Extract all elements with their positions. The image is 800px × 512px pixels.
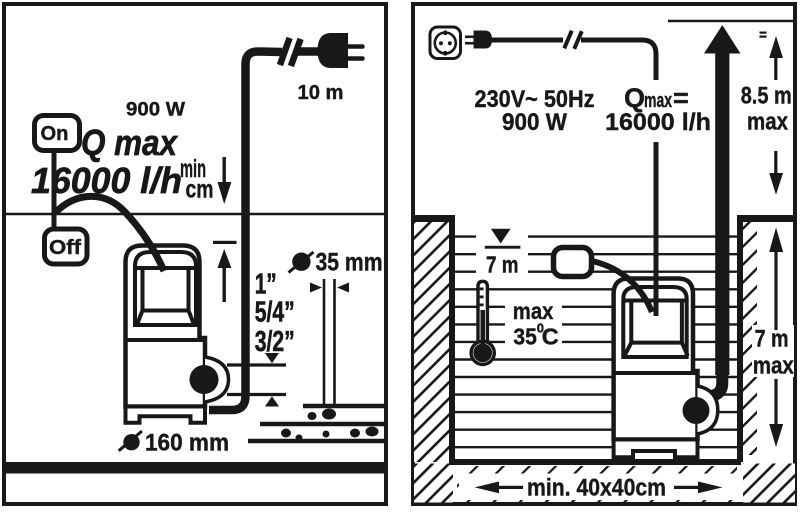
svg-text:35 mm: 35 mm: [316, 249, 383, 277]
svg-text:160 mm: 160 mm: [145, 431, 229, 457]
svg-text:16000 l/h: 16000 l/h: [31, 160, 182, 201]
svg-text:min. 40x40cm: min. 40x40cm: [527, 474, 666, 501]
svg-text:cm: cm: [186, 176, 214, 204]
svg-text:On: On: [41, 122, 69, 145]
svg-text:10 m: 10 m: [298, 82, 344, 104]
svg-text:5/4”: 5/4”: [255, 297, 295, 329]
svg-text:max: max: [753, 352, 795, 379]
svg-text:35: 35: [513, 324, 537, 350]
svg-text:max: max: [747, 109, 789, 136]
svg-text:3/2”: 3/2”: [255, 326, 295, 358]
svg-text:8.5 m: 8.5 m: [741, 84, 792, 110]
svg-text:max: max: [513, 298, 554, 324]
svg-text:7 m: 7 m: [486, 251, 519, 277]
svg-text:900 W: 900 W: [502, 109, 568, 136]
svg-text:16000 l/h: 16000 l/h: [605, 109, 711, 136]
svg-text:7 m: 7 m: [755, 326, 789, 353]
svg-text:C: C: [542, 324, 559, 350]
svg-text:Q max: Q max: [81, 122, 179, 163]
svg-text:Off: Off: [49, 236, 81, 259]
svg-text:900 W: 900 W: [126, 100, 185, 121]
